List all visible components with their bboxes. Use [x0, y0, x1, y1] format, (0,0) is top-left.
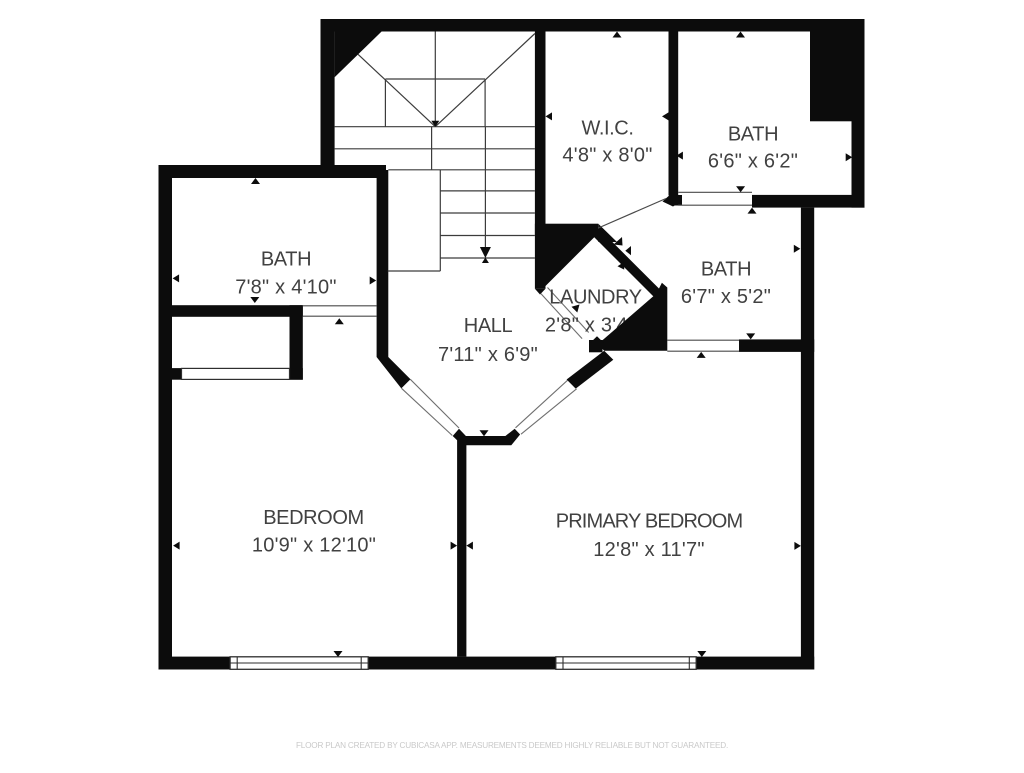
svg-text:7'8" x 4'10": 7'8" x 4'10" [235, 277, 337, 299]
svg-text:W.I.C.: W.I.C. [581, 118, 633, 140]
svg-text:7'11" x 6'9": 7'11" x 6'9" [438, 344, 538, 366]
svg-text:10'9" x 12'10": 10'9" x 12'10" [252, 535, 376, 557]
svg-text:4'8" x 8'0": 4'8" x 8'0" [562, 145, 652, 167]
svg-text:HALL: HALL [464, 315, 513, 337]
svg-text:BEDROOM: BEDROOM [263, 507, 364, 529]
svg-text:BATH: BATH [261, 249, 311, 271]
svg-text:6'6" x 6'2": 6'6" x 6'2" [708, 151, 798, 173]
svg-text:PRIMARY BEDROOM: PRIMARY BEDROOM [556, 511, 743, 533]
svg-text:LAUNDRY: LAUNDRY [549, 287, 641, 309]
svg-text:FLOOR PLAN CREATED BY CUBICASA: FLOOR PLAN CREATED BY CUBICASA APP. MEAS… [296, 741, 728, 750]
svg-text:6'7" x 5'2": 6'7" x 5'2" [681, 286, 771, 308]
svg-text:BATH: BATH [701, 259, 751, 281]
svg-text:12'8" x 11'7": 12'8" x 11'7" [593, 539, 704, 561]
svg-text:BATH: BATH [728, 124, 778, 146]
